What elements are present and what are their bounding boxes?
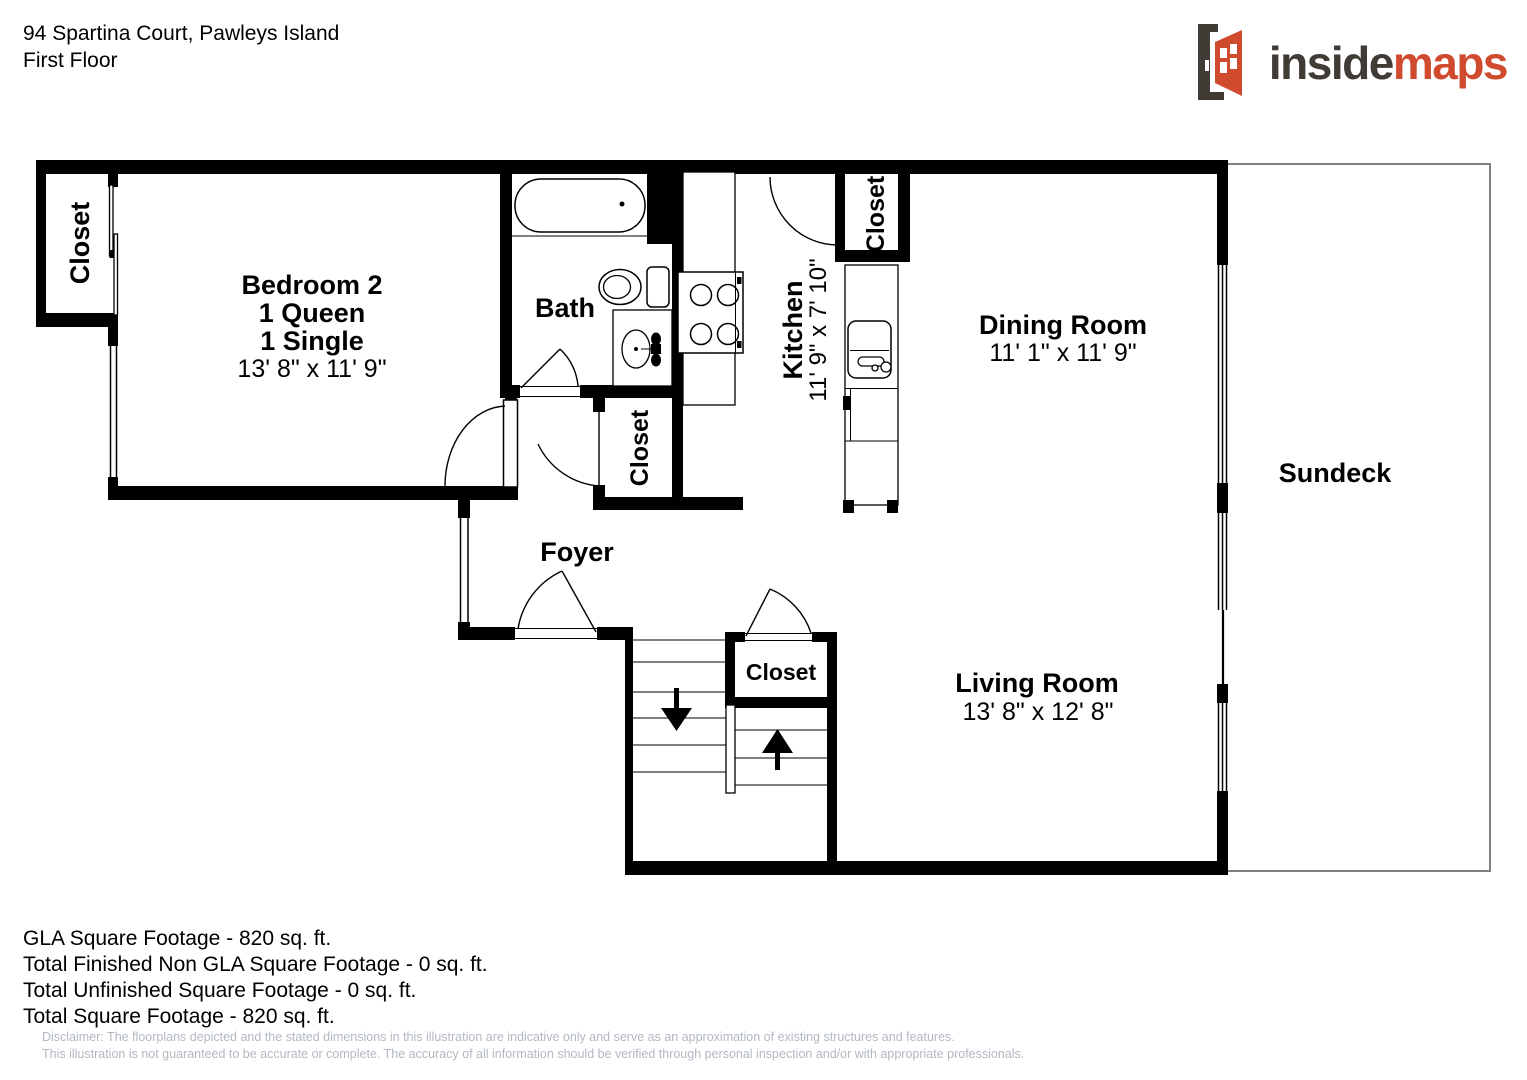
stair-treads-down [633, 640, 726, 772]
disclaimer: Disclaimer: The floorplans depicted and … [42, 1029, 1024, 1062]
kitchen-counter-right [845, 265, 898, 505]
sundeck-label: Sundeck [1279, 458, 1393, 488]
kitchen-label: Kitchen [778, 280, 808, 379]
closet-slider-panel [114, 234, 118, 315]
bedroom2-dims: 13' 8" x 11' 9" [237, 355, 386, 383]
stairs-up-arrow [762, 729, 793, 770]
tub-drain [620, 202, 625, 207]
bath-door-leaf [521, 349, 560, 388]
bedroom-door-leaf [504, 400, 518, 487]
dining-dims: 11' 1" x 11' 9" [989, 339, 1136, 367]
kitchen-dims: 11' 9" x 7' 10" [805, 258, 832, 401]
walls [36, 160, 1228, 875]
gla-sqft-line: GLA Square Footage - 820 sq. ft. [23, 926, 488, 952]
foyer-door-leaf [562, 571, 596, 632]
kitchen-faucet [858, 357, 884, 366]
bedroom2-label: Bedroom 2 [241, 270, 382, 300]
stairs-closet-door-leaf [746, 589, 770, 636]
hall-closet-door-arc [538, 444, 599, 486]
bath-faucet [651, 333, 661, 346]
dining-window [1219, 265, 1227, 483]
disclaimer-line-1: Disclaimer: The floorplans depicted and … [42, 1029, 1024, 1046]
foyer-label: Foyer [540, 537, 614, 567]
stairs-down-arrow [661, 688, 692, 731]
disclaimer-line-2: This illustration is not guaranteed to b… [42, 1046, 1024, 1063]
non-gla-sqft-line: Total Finished Non GLA Square Footage - … [23, 952, 488, 978]
closet-stairs-label: Closet [746, 659, 817, 685]
closet-slider-panel [110, 185, 114, 256]
floor-plan: Bedroom 2 1 Queen 1 Single 13' 8" x 11' … [0, 0, 1527, 1080]
bathtub [515, 179, 645, 232]
dining-label: Dining Room [979, 310, 1147, 340]
kitchen-door-arc [770, 177, 838, 245]
foyer-door-arc [518, 571, 562, 629]
bath-label: Bath [535, 293, 595, 323]
total-sqft-line: Total Square Footage - 820 sq. ft. [23, 1004, 488, 1030]
bedroom2-bed2: 1 Single [260, 326, 364, 356]
stove [678, 272, 743, 353]
closet-kitchen-label: Closet [862, 175, 890, 252]
counter-stub [843, 396, 851, 410]
bath-door-arc [560, 349, 578, 386]
closet-bedroom-label: Closet [65, 202, 95, 285]
bedroom-door-arc [445, 406, 505, 486]
unfinished-sqft-line: Total Unfinished Square Footage - 0 sq. … [23, 978, 488, 1004]
stair-divider [726, 705, 735, 793]
bedroom2-bed1: 1 Queen [259, 298, 366, 328]
stairs-closet-door-arc [770, 589, 811, 633]
living-dims: 13' 8" x 12' 8" [962, 698, 1113, 726]
square-footage-summary: GLA Square Footage - 820 sq. ft. Total F… [23, 926, 488, 1030]
closet-hall-label: Closet [626, 409, 654, 486]
sundeck-outline [1228, 164, 1490, 871]
living-label: Living Room [955, 668, 1119, 698]
toilet-tank [647, 267, 669, 307]
living-window-upper [1219, 513, 1227, 610]
living-window-lower [1219, 703, 1227, 791]
